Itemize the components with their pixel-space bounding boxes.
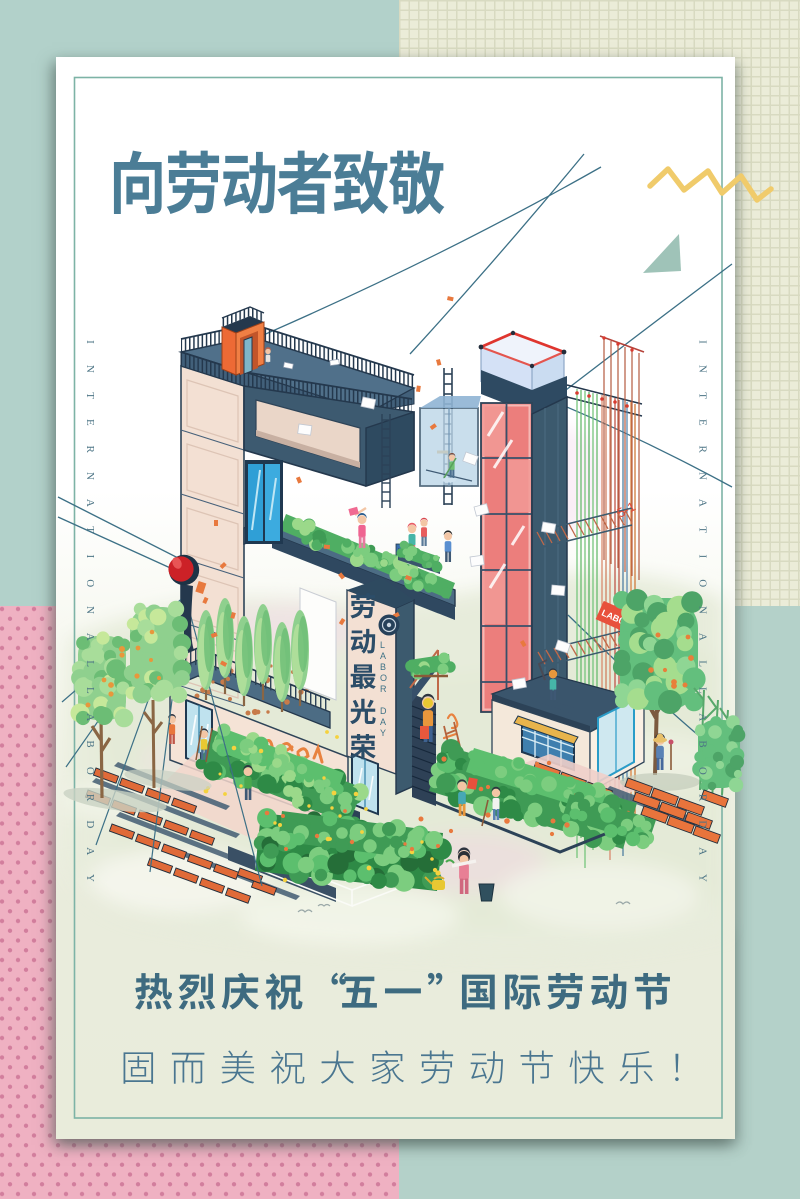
svg-text:T: T xyxy=(84,392,96,399)
svg-text:N: N xyxy=(697,365,709,373)
svg-text:A: A xyxy=(84,847,96,855)
svg-text:A: A xyxy=(697,633,709,641)
svg-text:B: B xyxy=(380,662,386,672)
svg-text:O: O xyxy=(697,579,709,587)
svg-text:L: L xyxy=(697,687,709,694)
svg-text:O: O xyxy=(697,767,709,775)
svg-text:D: D xyxy=(84,820,96,828)
svg-text:N: N xyxy=(84,472,96,480)
svg-text:R: R xyxy=(697,794,709,802)
svg-text:D: D xyxy=(697,820,709,828)
svg-text:R: R xyxy=(697,446,709,454)
svg-text:A: A xyxy=(84,633,96,641)
svg-text:D: D xyxy=(380,706,387,716)
svg-text:A: A xyxy=(84,713,96,721)
svg-text:R: R xyxy=(84,794,96,802)
svg-text:Y: Y xyxy=(84,874,96,882)
svg-text:O: O xyxy=(84,767,96,775)
svg-text:A: A xyxy=(697,499,709,507)
svg-text:Y: Y xyxy=(697,874,709,882)
svg-text:T: T xyxy=(697,392,709,399)
svg-text:I: I xyxy=(697,555,709,559)
svg-text:T: T xyxy=(697,526,709,533)
svg-text:L: L xyxy=(380,640,385,650)
svg-text:A: A xyxy=(84,499,96,507)
svg-text:A: A xyxy=(697,713,709,721)
svg-text:I: I xyxy=(697,340,709,344)
svg-text:N: N xyxy=(697,606,709,614)
svg-text:R: R xyxy=(84,446,96,454)
svg-text:L: L xyxy=(697,660,709,667)
svg-text:A: A xyxy=(697,847,709,855)
svg-text:A: A xyxy=(380,717,386,727)
svg-text:B: B xyxy=(84,740,96,747)
svg-text:E: E xyxy=(697,419,709,426)
svg-text:I: I xyxy=(84,340,96,344)
svg-text:N: N xyxy=(84,606,96,614)
svg-text:N: N xyxy=(697,472,709,480)
svg-text:B: B xyxy=(697,740,709,747)
svg-text:L: L xyxy=(84,660,96,667)
svg-text:I: I xyxy=(84,555,96,559)
svg-text:O: O xyxy=(84,579,96,587)
svg-text:R: R xyxy=(380,684,387,694)
svg-text:L: L xyxy=(84,687,96,694)
svg-text:E: E xyxy=(84,419,96,426)
svg-text:T: T xyxy=(84,526,96,533)
svg-text:Y: Y xyxy=(380,728,386,738)
svg-text:A: A xyxy=(380,651,386,661)
svg-text:O: O xyxy=(380,673,387,683)
svg-text:N: N xyxy=(84,365,96,373)
